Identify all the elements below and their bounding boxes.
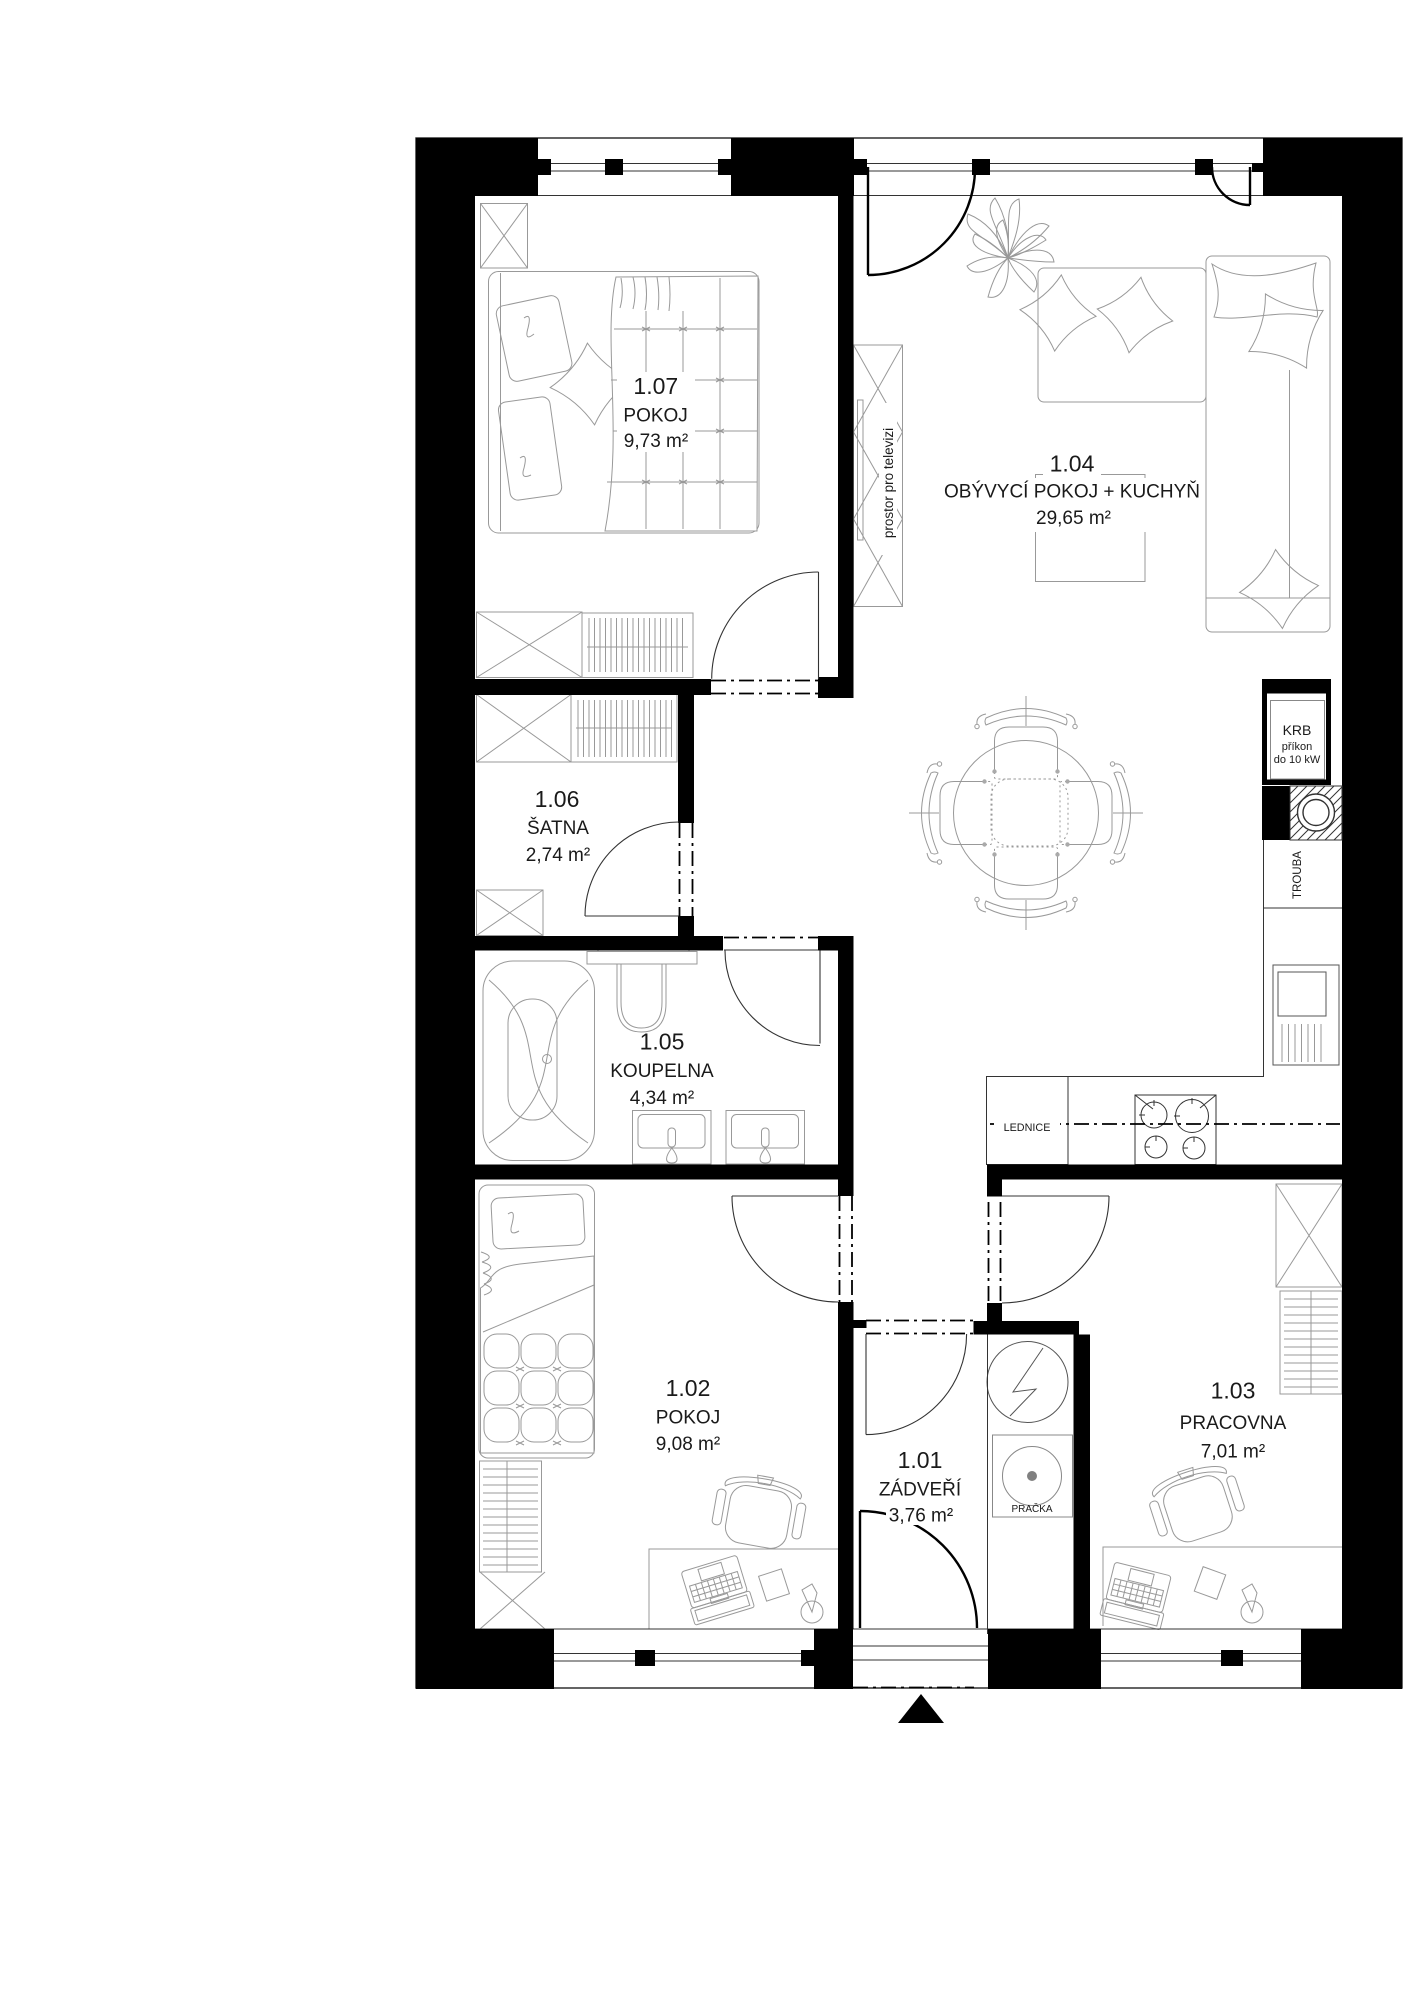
svg-text:1.03: 1.03 (1211, 1378, 1256, 1404)
svg-text:POKOJ: POKOJ (623, 406, 687, 427)
svg-text:TROUBA: TROUBA (1292, 851, 1304, 899)
svg-text:1.01: 1.01 (898, 1447, 943, 1473)
svg-text:7,01 m²: 7,01 m² (1201, 1442, 1265, 1463)
svg-text:9,08 m²: 9,08 m² (656, 1434, 720, 1455)
svg-text:příkon: příkon (1282, 741, 1313, 753)
svg-text:PRAČKA: PRAČKA (1011, 1502, 1052, 1515)
svg-text:9,73 m²: 9,73 m² (624, 431, 688, 452)
svg-text:2,74 m²: 2,74 m² (526, 845, 590, 866)
svg-text:1.07: 1.07 (633, 373, 678, 399)
svg-text:4,34 m²: 4,34 m² (630, 1088, 694, 1109)
svg-text:ZÁDVEŘÍ: ZÁDVEŘÍ (879, 1479, 962, 1501)
svg-text:KOUPELNA: KOUPELNA (610, 1061, 714, 1082)
svg-text:LEDNICE: LEDNICE (1004, 1122, 1051, 1134)
svg-text:29,65 m²: 29,65 m² (1036, 508, 1111, 529)
svg-text:KRB: KRB (1283, 722, 1312, 738)
svg-text:PRACOVNA: PRACOVNA (1180, 1413, 1287, 1434)
svg-text:1.05: 1.05 (640, 1029, 685, 1055)
svg-text:3,76 m²: 3,76 m² (889, 1506, 953, 1527)
svg-text:1.04: 1.04 (1050, 451, 1095, 477)
svg-text:prostor pro televizi: prostor pro televizi (881, 428, 896, 538)
svg-text:1.06: 1.06 (535, 786, 580, 812)
svg-text:do 10 kW: do 10 kW (1274, 754, 1321, 766)
svg-text:ŠATNA: ŠATNA (527, 817, 589, 839)
svg-text:OBÝVYCÍ POKOJ + KUCHYŇ: OBÝVYCÍ POKOJ + KUCHYŇ (944, 481, 1200, 503)
svg-text:1.02: 1.02 (666, 1375, 711, 1401)
svg-text:POKOJ: POKOJ (656, 1408, 720, 1429)
